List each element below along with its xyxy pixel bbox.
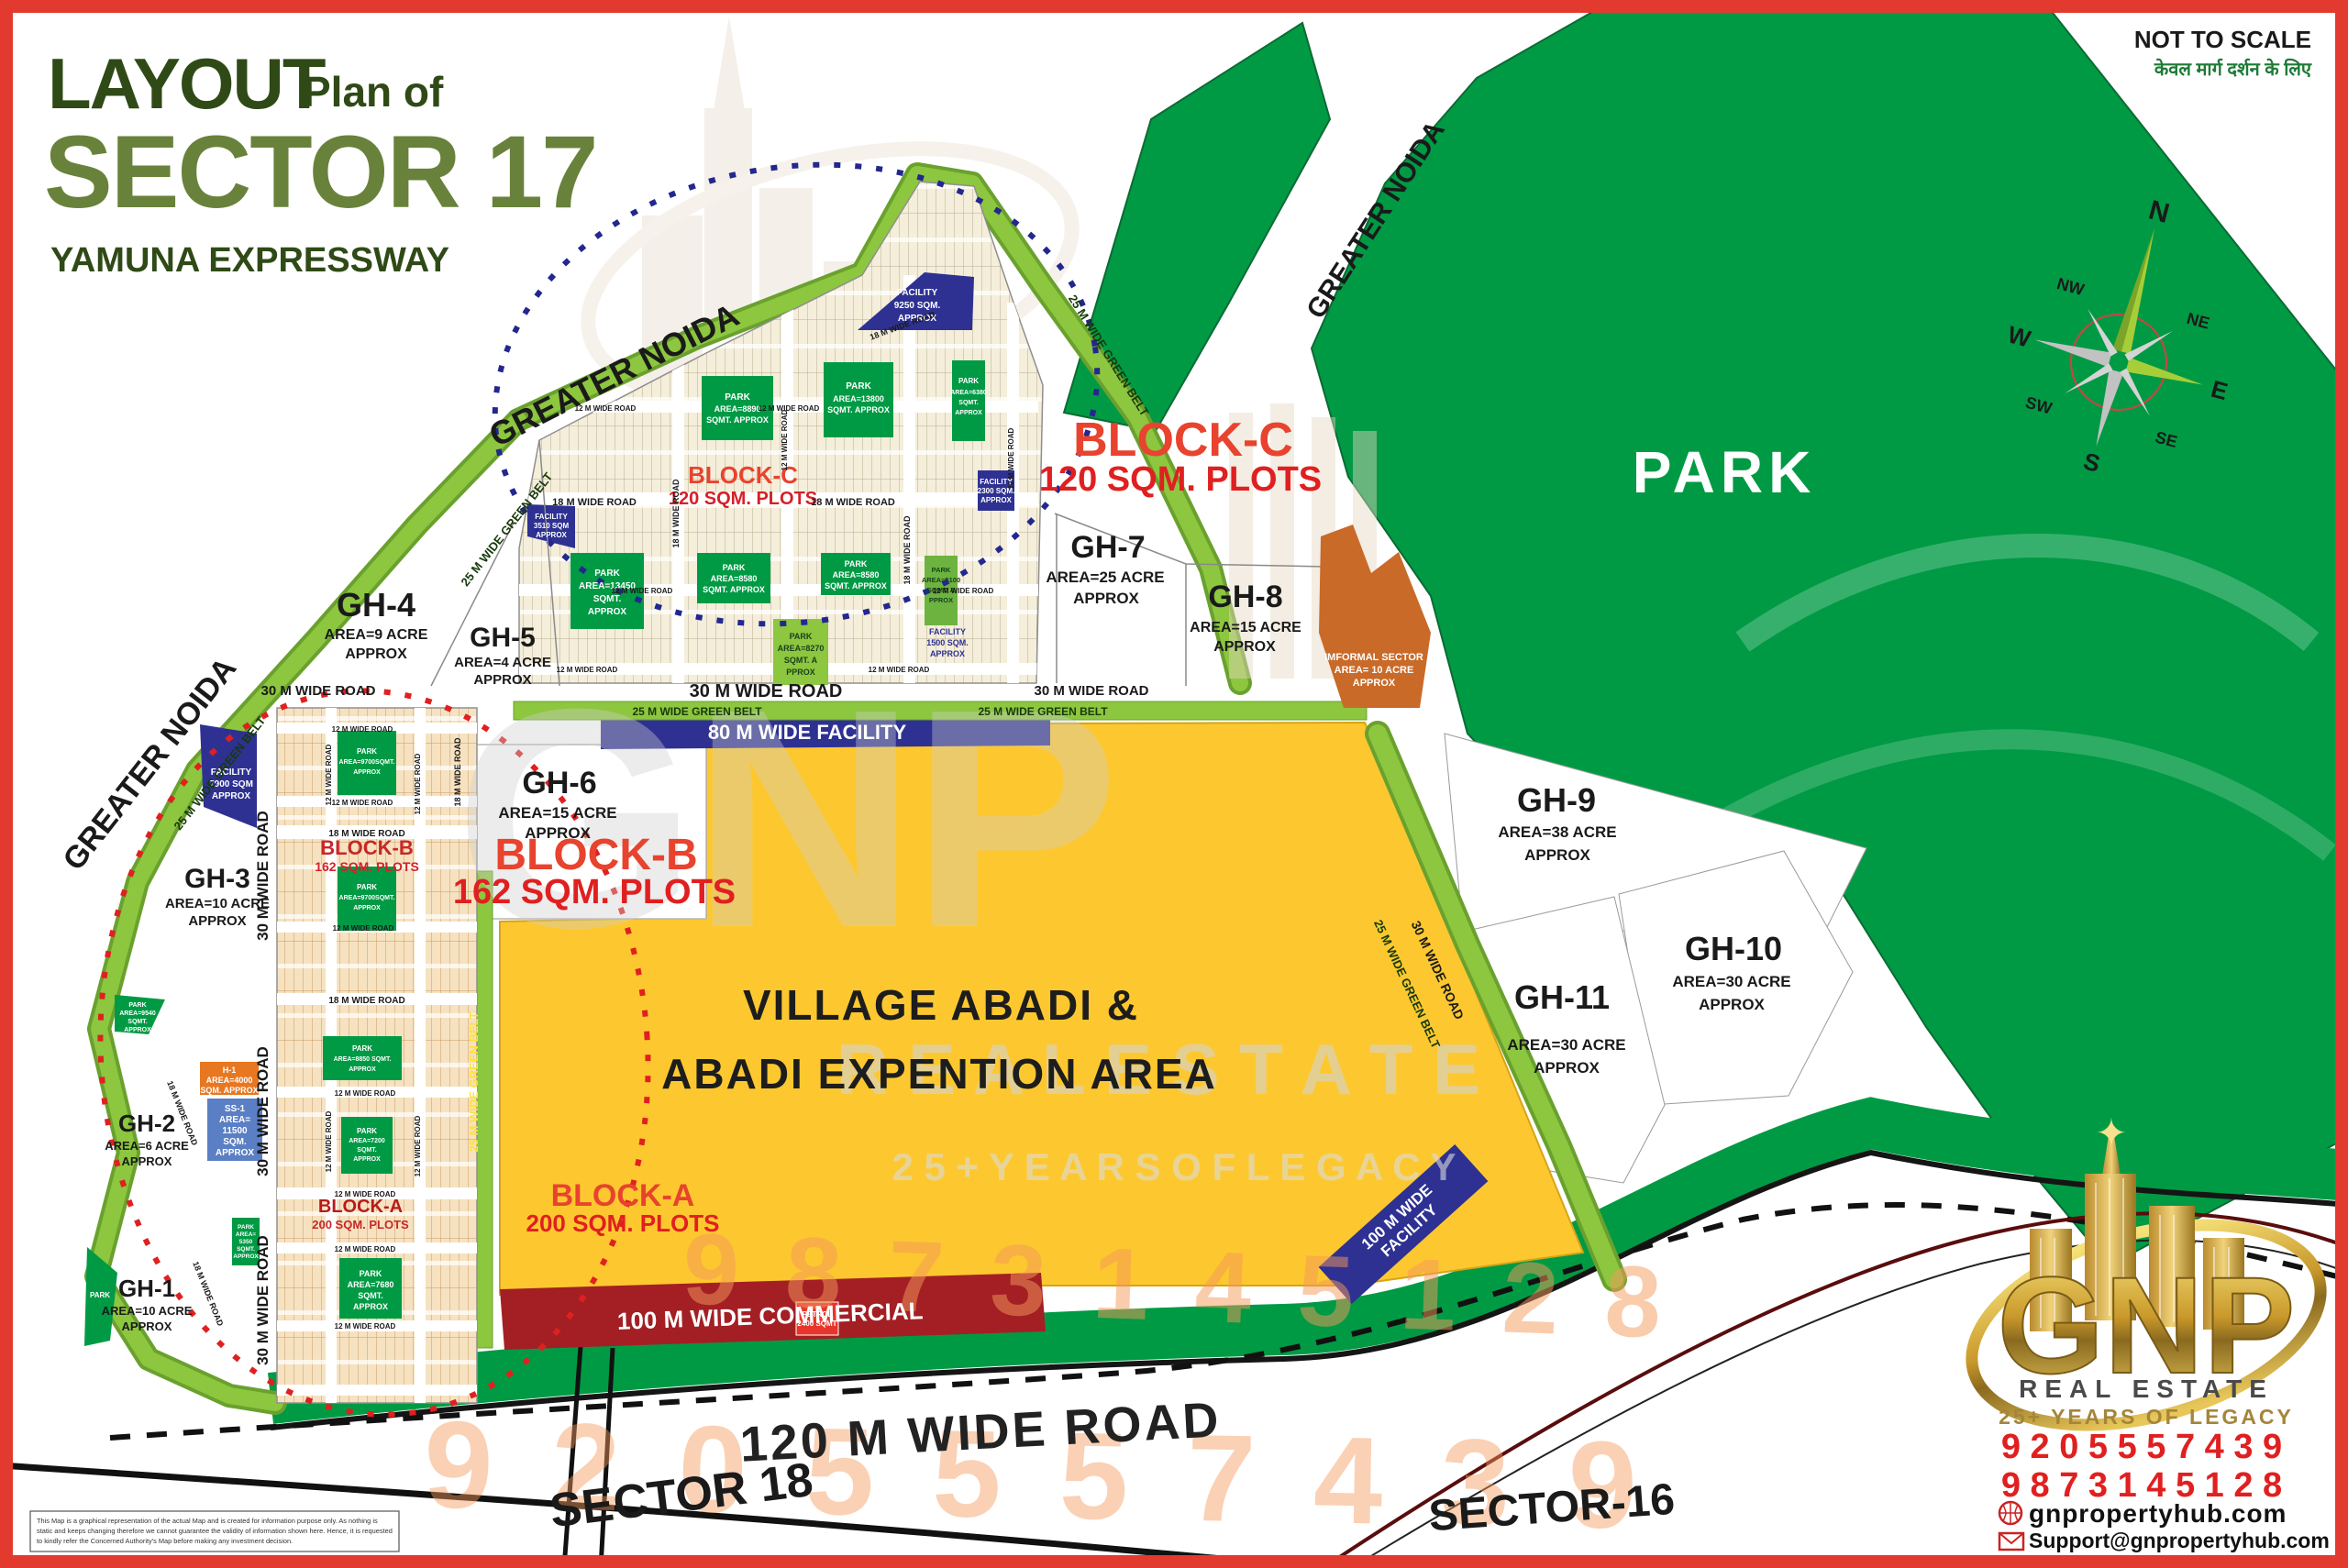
park-6380-l2: AREA=6380 [950, 390, 987, 396]
road-12m-label: 12 M WIDE ROAD [333, 924, 394, 933]
park-8580b-l1: PARK [845, 559, 868, 569]
park-13800-l2: AREA=13800 [833, 394, 884, 403]
gh6-label: GH-6 [522, 766, 596, 801]
park-7680-l2: AREA=7680 [348, 1280, 394, 1289]
brand-email: Support@gnpropertyhub.com [2029, 1529, 2330, 1552]
not-to-scale-text: NOT TO SCALE [2134, 26, 2311, 53]
gh9-area: AREA=38 ACRE [1498, 823, 1616, 841]
informal-line2: AREA= 10 ACRE [1335, 665, 1414, 676]
park-5100-l1: PARK [932, 566, 951, 574]
gh1-area: AREA=10 ACRE [102, 1304, 193, 1318]
park-8580b-l2: AREA=8580 [833, 570, 880, 580]
park-9700a-l1: PARK [357, 747, 377, 756]
gh8-label: GH-8 [1208, 580, 1282, 614]
park-5100-l4: PPROX [929, 596, 953, 604]
village-line1: VILLAGE ABADI & [743, 981, 1139, 1029]
belt25-label-vertical: 25 M WIDE GREEN BELT [467, 1012, 481, 1153]
hindi-note-text: केवल मार्ग दर्शन के लिए [2154, 58, 2312, 80]
park-9700b-l2: AREA=9700SQMT. [339, 895, 395, 901]
road-12m-label: 12 M WIDE ROAD [575, 404, 637, 413]
facility-3510-l3: APPROX [536, 531, 567, 539]
park-8850-l1: PARK [352, 1044, 372, 1053]
park-8580a-l1: PARK [723, 563, 746, 572]
block-a-large-plots: 200 SQM. PLOTS [526, 1209, 720, 1237]
gh7-approx: APPROX [1073, 590, 1139, 607]
road-12m-vertical: 12 M WIDE ROAD [781, 409, 789, 470]
park-8890-l1: PARK [725, 392, 750, 403]
park-9540-l4: APPROX [124, 1027, 151, 1033]
facility-7900-l3: APPROX [212, 791, 251, 801]
disclaimer-line1: This Map is a graphical representation o… [37, 1517, 378, 1525]
park-8580b-l3: SQMT. APPROX [825, 581, 887, 591]
gh9-approx: APPROX [1524, 846, 1590, 864]
informal-line3: APPROX [1353, 678, 1396, 689]
gh8-area: AREA=15 ACRE [1190, 620, 1301, 635]
block-a-small-plots: 200 SQM. PLOTS [312, 1218, 409, 1231]
park-5350-l1: PARK [238, 1224, 254, 1231]
park-big-label: PARK [1633, 439, 1817, 505]
gh1-label: GH-1 [118, 1275, 175, 1302]
road-18m-label: 18 M WIDE ROAD [328, 829, 404, 839]
disclaimer-line2: static and keeps changing therefore we c… [37, 1527, 393, 1535]
park-9540-l2: AREA=9540 [119, 1010, 156, 1017]
h1-l3: SQM. APPROX [200, 1086, 258, 1095]
road-12m-vertical: 12 M WIDE ROAD [1007, 427, 1015, 489]
road-12m-label: 12 M WIDE ROAD [335, 1322, 396, 1331]
road-12m-label: 12 M WIDE ROAD [335, 1089, 396, 1098]
ss1-l3: 11500 [222, 1126, 248, 1136]
gh7-label: GH-7 [1070, 530, 1145, 565]
park-13450-l4: APPROX [588, 607, 627, 617]
gh10-approx: APPROX [1699, 996, 1765, 1013]
road-30m-label: 30 M WIDE ROAD [260, 683, 375, 699]
park-8890-l3: SQMT. APPROX [706, 415, 769, 425]
facility-3510-l2: 3510 SQM [534, 522, 570, 530]
title-layout: LAYOUT [48, 43, 326, 124]
park-8270-l1: PARK [790, 632, 813, 641]
sector17-layout-poster: GNP R E A L E S T A T E 2 5 + Y E A R S … [0, 0, 2348, 1568]
title-sector: SECTOR 17 [44, 115, 596, 229]
road-18m-label: 18 M WIDE ROAD [552, 497, 637, 508]
park-5100-l2: AREA=5100 [922, 576, 960, 584]
park-7200 [341, 1117, 393, 1174]
park-8850-l3: APPROX [349, 1066, 376, 1073]
park-8890-l2: AREA=8890 [714, 404, 761, 414]
park-7680-l4: APPROX [353, 1302, 388, 1311]
gh5-approx: APPROX [473, 672, 531, 688]
block-c-large-name: BLOCK-C [1073, 414, 1293, 467]
facility-9250-l1: FACILITY [897, 288, 938, 298]
brand-star-icon: ✦ [2095, 1111, 2127, 1154]
gh2-approx: APPROX [122, 1154, 172, 1168]
brand-real-estate: REAL ESTATE [2019, 1375, 2274, 1403]
park-6380-l1: PARK [958, 377, 979, 385]
belt25-label-horizontal2: 25 M WIDE GREEN BELT [632, 705, 762, 718]
gh3-label: GH-3 [184, 864, 250, 894]
block-c-large-plots: 120 SQM. PLOTS [1039, 460, 1322, 499]
village-line2: ABADI EXPENTION AREA [661, 1050, 1217, 1098]
road-12m-label: 12 M WIDE ROAD [612, 587, 673, 595]
road-12m-label: 12 M WIDE ROAD [759, 404, 820, 413]
park-8270-l4: PPROX [786, 668, 815, 677]
park-7680-l1: PARK [360, 1269, 382, 1278]
road-12m-vertical: 12 M WIDE ROAD [325, 744, 333, 805]
h1-l1: H-1 [223, 1066, 237, 1075]
park-8270-l3: SQMT. A [784, 656, 818, 665]
disclaimer-box: This Map is a graphical representation o… [30, 1511, 399, 1551]
park-6380-l3: SQMT. [958, 400, 978, 406]
road-12m-label: 12 M WIDE ROAD [332, 725, 393, 734]
facility-80m-label: 80 M WIDE FACILITY [708, 721, 907, 744]
facility-1500-l1: FACILITY [929, 627, 966, 636]
park-5350-l4: SQMT. [237, 1246, 255, 1253]
park-9700a-l3: APPROX [353, 769, 381, 776]
facility-3510-l1: FACILITY [535, 513, 568, 521]
gh5-label: GH-5 [470, 623, 536, 653]
park-9700a-l2: AREA=9700SQMT. [339, 759, 395, 766]
road-12m-label: 12 M WIDE ROAD [557, 666, 618, 674]
globe-icon [1999, 1502, 2021, 1524]
park-13450-l1: PARK [594, 569, 620, 579]
park-wedge-l1: PARK [90, 1291, 110, 1299]
road-12m-vertical: 12 M WIDE ROAD [325, 1110, 333, 1172]
ss1-l4: SQM. [223, 1137, 247, 1147]
park-7680-l3: SQMT. [358, 1291, 383, 1300]
gh3-approx: APPROX [188, 913, 246, 929]
park-6380-l4: APPROX [955, 410, 982, 416]
park-8270-l2: AREA=8270 [778, 644, 825, 653]
park-7200-l2: AREA=7200 [349, 1138, 385, 1144]
road-corridor [277, 1385, 477, 1396]
belt25-label-horizontal: 25 M WIDE GREEN BELT [978, 705, 1108, 718]
gh4-area: AREA=9 ACRE [325, 627, 428, 643]
road-30m-vertical: 30 M WIDE ROAD [254, 811, 271, 941]
ss1-l1: SS-1 [225, 1104, 246, 1114]
park-9540-l3: SQMT. [127, 1019, 147, 1025]
park-8580a-l3: SQMT. APPROX [703, 585, 765, 594]
brand-phone-1: 9 2 0 5 5 5 7 4 3 9 [2001, 1428, 2282, 1466]
gh11-area: AREA=30 ACRE [1507, 1036, 1625, 1054]
road-30m-label: 30 M WIDE ROAD [690, 681, 843, 701]
park-8580a-l2: AREA=8580 [711, 574, 758, 583]
gh7-area: AREA=25 ACRE [1046, 569, 1164, 586]
park-13800-l1: PARK [846, 381, 871, 392]
scale-note: NOT TO SCALE केवल मार्ग दर्शन के लिए [2134, 26, 2312, 80]
gh9-label: GH-9 [1517, 781, 1596, 819]
mail-icon [1999, 1533, 2023, 1550]
sector17-layout-map: GNP R E A L E S T A T E 2 5 + Y E A R S … [0, 0, 2348, 1568]
road-corridor [903, 275, 915, 683]
watermark-legacy: 2 5 + Y E A R S O F L E G A C Y [892, 1145, 1456, 1188]
gh8-approx: APPROX [1213, 639, 1276, 655]
block-b-large-plots: 162 SQM. PLOTS [453, 873, 736, 911]
road-18m-label: 18 M WIDE ROAD [811, 497, 895, 508]
block-b-small-name: BLOCK-B [320, 836, 413, 859]
road-12m-label: 12 M WIDE ROAD [335, 1245, 396, 1253]
h1-l2: AREA=4000 [206, 1076, 253, 1085]
informal-line1: IMFORMAL SECTOR [1324, 652, 1423, 663]
facility-9250-l2: 9250 SQM. [894, 301, 941, 311]
block-a-large-name: BLOCK-A [551, 1178, 695, 1213]
block-c-small-plots: 120 SQM. PLOTS [669, 489, 817, 509]
title-expressway: YAMUNA EXPRESSWAY [50, 241, 449, 280]
park-7200-l4: APPROX [353, 1156, 381, 1163]
park-13450-l3: SQMT. [593, 594, 622, 604]
brand-legacy: 25+ YEARS OF LEGACY [1999, 1405, 2294, 1429]
gh4-label: GH-4 [337, 586, 415, 624]
facility-1500-l2: 1500 SQM. [926, 638, 969, 647]
road-12m-label: 12 M WIDE ROAD [869, 666, 930, 674]
road-12m-label: 12 M WIDE ROAD [933, 587, 994, 595]
block-a-small-name: BLOCK-A [318, 1197, 403, 1217]
road-30m-label: 30 M WIDE ROAD [1034, 683, 1148, 699]
gh4-approx: APPROX [345, 646, 407, 662]
gh1-approx: APPROX [122, 1320, 172, 1333]
park-9700b-l1: PARK [357, 883, 377, 891]
road-12m-vertical: 12 M WIDE ROAD [414, 753, 422, 814]
gh6-area: AREA=15 ACRE [498, 804, 616, 822]
road-30m-vertical: 30 M WIDE ROAD [254, 1046, 271, 1176]
title-plan-of: Plan of [303, 68, 444, 116]
park-9540-l1: PARK [128, 1002, 146, 1009]
park-7200-l3: SQMT. [357, 1147, 376, 1154]
gh11-approx: APPROX [1534, 1059, 1600, 1077]
road-12m-label: 12 M WIDE ROAD [332, 799, 393, 807]
road-18m-vertical: 18 M WIDE ROAD [903, 515, 912, 585]
park-9700b-l3: APPROX [353, 905, 381, 911]
road-12m-label: 12 M WIDE ROAD [335, 1190, 396, 1198]
facility-2300-l3: APPROX [980, 496, 1012, 504]
ss1-l2: AREA= [219, 1115, 250, 1125]
road-12m-vertical: 12 M WIDE ROAD [414, 1115, 422, 1176]
brand-website: gnpropertyhub.com [2029, 1499, 2287, 1528]
ss1-l5: APPROX [216, 1148, 255, 1158]
facility-1500-l3: APPROX [930, 649, 965, 658]
gh5-area: AREA=4 ACRE [454, 655, 551, 670]
road-30m-vertical: 30 M WIDE ROAD [254, 1235, 271, 1365]
park-5350-l2: AREA= [236, 1231, 256, 1238]
road-18m-label: 18 M WIDE ROAD [328, 996, 404, 1006]
gh11-label: GH-11 [1514, 978, 1610, 1016]
gh10-area: AREA=30 ACRE [1672, 973, 1790, 990]
park-13800-l3: SQMT. APPROX [827, 405, 890, 414]
road-18m-vertical: 18 M WIDE ROAD [671, 479, 681, 548]
disclaimer-line3: to kindly refer the Concerned Authority'… [37, 1537, 293, 1545]
gh10-label: GH-10 [1685, 930, 1782, 967]
gh2-area: AREA=6 ACRE [105, 1139, 189, 1153]
block-b-small-plots: 162 SQM. PLOTS [315, 859, 419, 874]
road-18m-vertical: 18 M WIDE ROAD [453, 737, 462, 807]
park-5350-l3: 5350 [239, 1239, 253, 1245]
gh2-label: GH-2 [118, 1110, 175, 1137]
park-8850-l2: AREA=8850 SQMT. [334, 1056, 392, 1063]
park-7200-l1: PARK [357, 1127, 377, 1135]
